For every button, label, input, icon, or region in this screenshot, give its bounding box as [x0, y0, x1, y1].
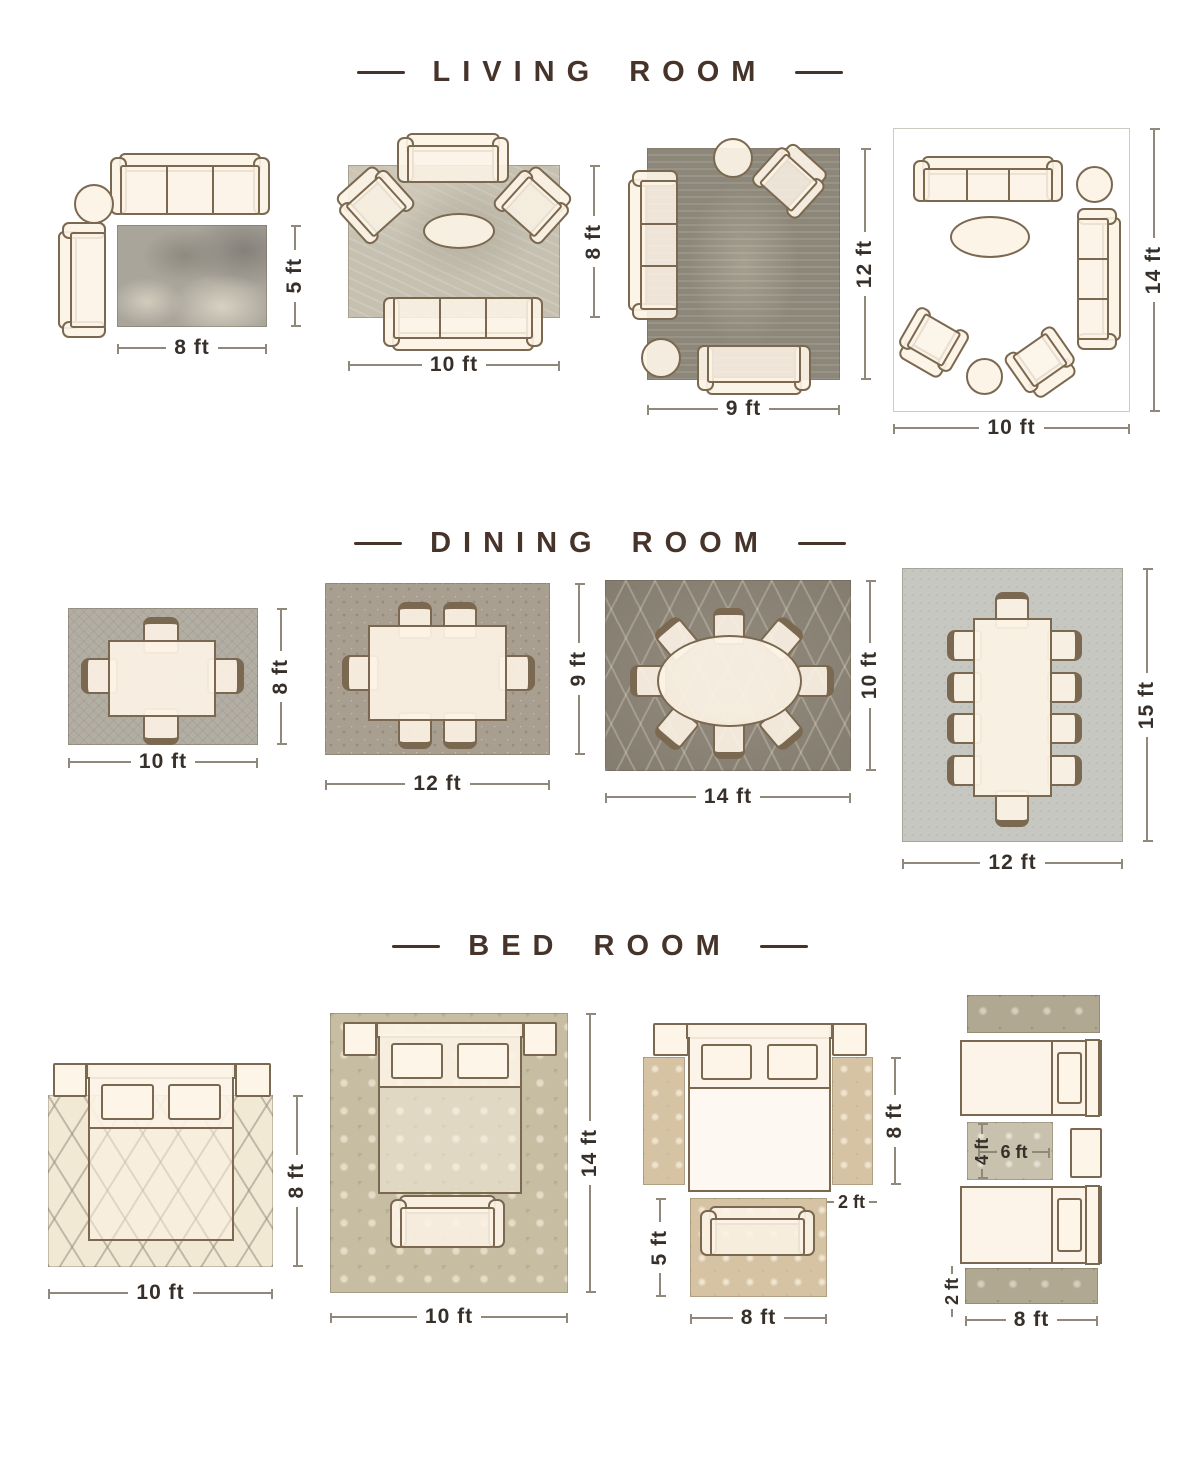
dimension-label: 9 ft [567, 643, 591, 695]
dimension-label: 8 ft [166, 336, 218, 360]
heading-dash [795, 71, 843, 74]
bed-body [690, 1089, 829, 1190]
dimension-line [325, 783, 405, 785]
dining-chair [797, 665, 834, 697]
sofa-seat [407, 145, 499, 183]
bed-body [380, 1088, 520, 1192]
sofa-3-seat [110, 153, 270, 217]
height-dimension: 10 ft [858, 580, 882, 771]
dimension-label: 8 ft [582, 216, 606, 268]
pillow [1057, 1052, 1082, 1104]
sofa-seat [710, 1218, 805, 1256]
dimension-label: 10 ft [858, 643, 882, 707]
dimension-line [951, 1266, 953, 1274]
nightstand [343, 1022, 377, 1056]
dimension-label: 8 ft [285, 1155, 309, 1207]
width-dimension: 10 ft [330, 1305, 568, 1329]
dimension-line [869, 708, 871, 771]
dimension-label: 6 ft [997, 1142, 1032, 1163]
accent-rug-height-dimension: 5 ft [648, 1198, 672, 1297]
living-layout-8x5: 5 ft 8 ft [50, 140, 310, 365]
width-dimension: 12 ft [325, 772, 550, 796]
width-dimension: 10 ft [348, 353, 560, 377]
dimension-line [193, 1292, 273, 1294]
accent-rug-width-dimension: 8 ft [690, 1306, 827, 1330]
dimension-line [296, 1207, 298, 1267]
dimension-line [1045, 862, 1123, 864]
bed-room-heading: BED ROOM [0, 930, 1200, 963]
living-room-heading: LIVING ROOM [0, 56, 1200, 89]
runner-height-dimension: 8 ft [883, 1057, 907, 1185]
living-layout-10x8: 8 ft 10 ft [340, 125, 610, 380]
dimension-line [280, 702, 282, 745]
nightstand [53, 1063, 87, 1097]
sofa-seat [923, 168, 1053, 202]
dimension-label: 15 ft [1135, 673, 1159, 737]
dimension-label: 5 ft [648, 1222, 672, 1274]
dimension-line [195, 761, 258, 763]
dining-chair [1047, 672, 1082, 703]
cushion [1008, 170, 1051, 200]
twin-bed [960, 1186, 1102, 1264]
cushion [642, 182, 676, 225]
cushion [487, 299, 531, 337]
oval-dining-table [657, 635, 802, 727]
dimension-line [864, 148, 866, 232]
sofa-wrapper [628, 170, 680, 320]
dimension-line [864, 296, 866, 380]
dimension-line [593, 267, 595, 318]
dimension-label: 8 ft [883, 1095, 907, 1147]
dimension-line [981, 1123, 983, 1134]
dimension-line [470, 783, 550, 785]
dimension-line [578, 695, 580, 755]
cushion [1079, 298, 1107, 338]
height-dimension: 12 ft [853, 148, 877, 380]
nightstand [1070, 1128, 1102, 1178]
dimension-line [1032, 1151, 1051, 1153]
bed-layout-10x8: 8 ft 10 ft [40, 1055, 310, 1305]
runner-rug [643, 1057, 685, 1185]
dimension-label: 2 ft [942, 1274, 963, 1309]
dimension-label: 8 ft [733, 1306, 785, 1330]
dimension-line [481, 1316, 568, 1318]
dimension-line [894, 1147, 896, 1185]
runner-length-dimension: 8 ft [965, 1308, 1098, 1332]
bed-fold-line [1051, 1042, 1053, 1114]
dimension-label: 14 ft [578, 1121, 602, 1185]
cushion [1079, 220, 1107, 258]
heading-dash [354, 542, 402, 545]
width-dimension: 8 ft [117, 336, 267, 360]
loveseat [700, 1206, 815, 1258]
height-dimension: 5 ft [283, 225, 307, 327]
nightstand [235, 1063, 271, 1097]
cushion [72, 234, 104, 326]
dimension-line [760, 796, 851, 798]
dining-chair [713, 722, 745, 759]
height-dimension: 8 ft [285, 1095, 309, 1267]
bed-fold-line [1051, 1188, 1053, 1262]
round-side-table [641, 338, 681, 378]
dimension-line [965, 1319, 1006, 1321]
cushion [925, 170, 966, 200]
dimension-line [68, 761, 131, 763]
cushion [122, 167, 166, 213]
cushion [642, 225, 676, 268]
rug-size-guide: LIVING ROOM 5 ft 8 ft [0, 0, 1200, 1467]
nightstand [523, 1022, 557, 1056]
bed-layout-10x14: 14 ft 10 ft [328, 1010, 598, 1325]
dimension-label: 10 ft [979, 416, 1043, 440]
nightstand [653, 1023, 689, 1056]
cushion [709, 347, 799, 381]
heading-dash [798, 542, 846, 545]
dimension-line [296, 1095, 298, 1155]
dimension-line [348, 364, 422, 366]
dimension-line [280, 608, 282, 651]
dimension-line [589, 1185, 591, 1293]
cushion [166, 167, 212, 213]
queen-bed [88, 1063, 234, 1241]
sofa-3-seat [1075, 208, 1121, 350]
cushion [409, 147, 497, 181]
cushion [402, 1209, 493, 1246]
dimension-line [294, 225, 296, 250]
dimension-label: 12 ft [853, 232, 877, 296]
cushion [212, 167, 258, 213]
dimension-line [951, 1309, 953, 1317]
sofa-3-seat [383, 295, 543, 351]
sofa-3-seat [628, 170, 680, 320]
dimension-line [981, 1169, 983, 1180]
width-dimension: 10 ft [68, 750, 258, 774]
dining-chair [1047, 713, 1082, 744]
dimension-line [294, 302, 296, 327]
width-dimension: 10 ft [48, 1281, 273, 1305]
queen-bed [688, 1023, 831, 1192]
dimension-label: 8 ft [1006, 1308, 1058, 1332]
pillow [1057, 1198, 1082, 1251]
loveseat-wrapper [58, 222, 108, 338]
heading-dash [357, 71, 405, 74]
width-dimension: 9 ft [647, 397, 840, 421]
dimension-line [902, 862, 980, 864]
width-dimension: 10 ft [893, 416, 1130, 440]
height-dimension: 15 ft [1135, 568, 1159, 842]
dimension-line [690, 1317, 733, 1319]
dining-table [973, 618, 1052, 797]
dimension-line [486, 364, 560, 366]
dimension-label: 10 ft [128, 1281, 192, 1305]
dimension-line [1153, 302, 1155, 412]
living-layout-9x12: 12 ft 9 ft [625, 135, 880, 430]
headboard [1085, 1185, 1100, 1265]
dimension-label: 12 ft [405, 772, 469, 796]
pillow [101, 1084, 153, 1120]
dimension-label: 8 ft [269, 651, 293, 703]
section-title-bed-room: BED ROOM [468, 930, 732, 963]
dimension-line [869, 1201, 877, 1203]
sofa-seat [1077, 218, 1109, 340]
sofa-seat [640, 180, 678, 310]
width-dimension: 14 ft [605, 785, 851, 809]
dimension-label: 9 ft [718, 397, 770, 421]
dimension-line [659, 1198, 661, 1222]
dimension-line [578, 583, 580, 643]
dining-layout-12x9: 9 ft 12 ft [320, 580, 590, 795]
queen-bed [378, 1022, 522, 1194]
dimension-line [48, 1292, 128, 1294]
pillow [457, 1043, 509, 1079]
cushion [642, 267, 676, 308]
small-rug-width-dimension: 6 ft [978, 1140, 1050, 1164]
cushion [395, 299, 441, 337]
dimension-label: 5 ft [283, 250, 307, 302]
dining-layout-12x15: 15 ft 12 ft [895, 568, 1160, 873]
height-dimension: 8 ft [269, 608, 293, 745]
dimension-line [826, 1201, 834, 1203]
sofa-seat [393, 297, 533, 339]
dining-layout-14x10: 10 ft 14 ft [600, 578, 880, 808]
rug-8x5 [117, 225, 267, 327]
dimension-line [893, 427, 979, 429]
dimension-line [769, 408, 840, 410]
runner-rug [965, 1268, 1098, 1304]
dimension-line [894, 1057, 896, 1095]
section-title-living-room: LIVING ROOM [433, 56, 768, 89]
living-layout-10x14: 14 ft 10 ft [890, 118, 1185, 448]
oval-coffee-table [423, 213, 495, 249]
loveseat [58, 222, 108, 338]
sofa-seat [400, 1207, 495, 1248]
dimension-line [1153, 128, 1155, 238]
dimension-label: 2 ft [834, 1192, 869, 1213]
pillow [391, 1043, 443, 1079]
round-side-table [966, 358, 1003, 395]
heading-dash [392, 945, 440, 948]
dimension-label: 10 ft [131, 750, 195, 774]
height-dimension: 14 ft [1142, 128, 1166, 412]
dimension-label: 14 ft [1142, 238, 1166, 302]
dimension-line [869, 580, 871, 643]
dining-table [108, 640, 216, 717]
section-title-dining-room: DINING ROOM [430, 527, 770, 560]
width-dimension: 12 ft [902, 851, 1123, 875]
dimension-line [1146, 737, 1148, 842]
dimension-line [1057, 1319, 1098, 1321]
dimension-line [1146, 568, 1148, 673]
pillow [168, 1084, 220, 1120]
runner-width-dimension: 2 ft [940, 1266, 964, 1306]
loveseat [397, 133, 509, 185]
dimension-line [330, 1316, 417, 1318]
dining-chair [1047, 630, 1082, 661]
dining-layout-10x8: 8 ft 10 ft [55, 595, 300, 785]
bed-layout-twin: 4 ft 6 ft 2 ft 8 ft [940, 990, 1200, 1335]
oval-coffee-table [950, 216, 1030, 258]
dining-chair [1047, 755, 1082, 786]
dimension-line [593, 165, 595, 216]
dining-table [368, 625, 507, 721]
cushion [441, 299, 487, 337]
headboard [1085, 1039, 1100, 1117]
runner-width-dimension: 2 ft [826, 1190, 884, 1214]
pillow [701, 1044, 752, 1080]
round-side-table [1076, 166, 1113, 203]
twin-bed [960, 1040, 1102, 1116]
height-dimension: 14 ft [578, 1013, 602, 1293]
height-dimension: 8 ft [582, 165, 606, 318]
cushion [966, 170, 1009, 200]
dimension-line [784, 1317, 827, 1319]
loveseat [697, 343, 811, 395]
sofa-seat [70, 232, 106, 328]
heading-dash [760, 945, 808, 948]
dimension-label: 12 ft [980, 851, 1044, 875]
dining-room-heading: DINING ROOM [0, 527, 1200, 560]
height-dimension: 9 ft [567, 583, 591, 755]
dimension-label: 10 ft [422, 353, 486, 377]
dimension-line [978, 1151, 997, 1153]
dimension-line [659, 1273, 661, 1297]
cushion [712, 1220, 803, 1254]
round-side-table [74, 184, 114, 224]
sofa-wrapper [1075, 208, 1121, 350]
dimension-label: 14 ft [696, 785, 760, 809]
runner-rug [832, 1057, 873, 1185]
dimension-line [218, 347, 267, 349]
dimension-label: 10 ft [417, 1305, 481, 1329]
bed-body [90, 1129, 232, 1239]
round-side-table [713, 138, 753, 178]
cushion [1079, 258, 1107, 298]
runner-rug [967, 995, 1100, 1033]
dimension-line [647, 408, 718, 410]
dimension-line [589, 1013, 591, 1121]
sofa-3-seat [913, 156, 1063, 204]
pillow [767, 1044, 818, 1080]
sofa-seat [707, 345, 801, 383]
bed-layout-runners: 8 ft 2 ft 5 ft 8 ft [640, 1018, 905, 1323]
dimension-line [1044, 427, 1130, 429]
dimension-line [605, 796, 696, 798]
dimension-line [117, 347, 166, 349]
nightstand [832, 1023, 867, 1056]
sofa-seat [120, 165, 260, 215]
bench [390, 1195, 505, 1250]
